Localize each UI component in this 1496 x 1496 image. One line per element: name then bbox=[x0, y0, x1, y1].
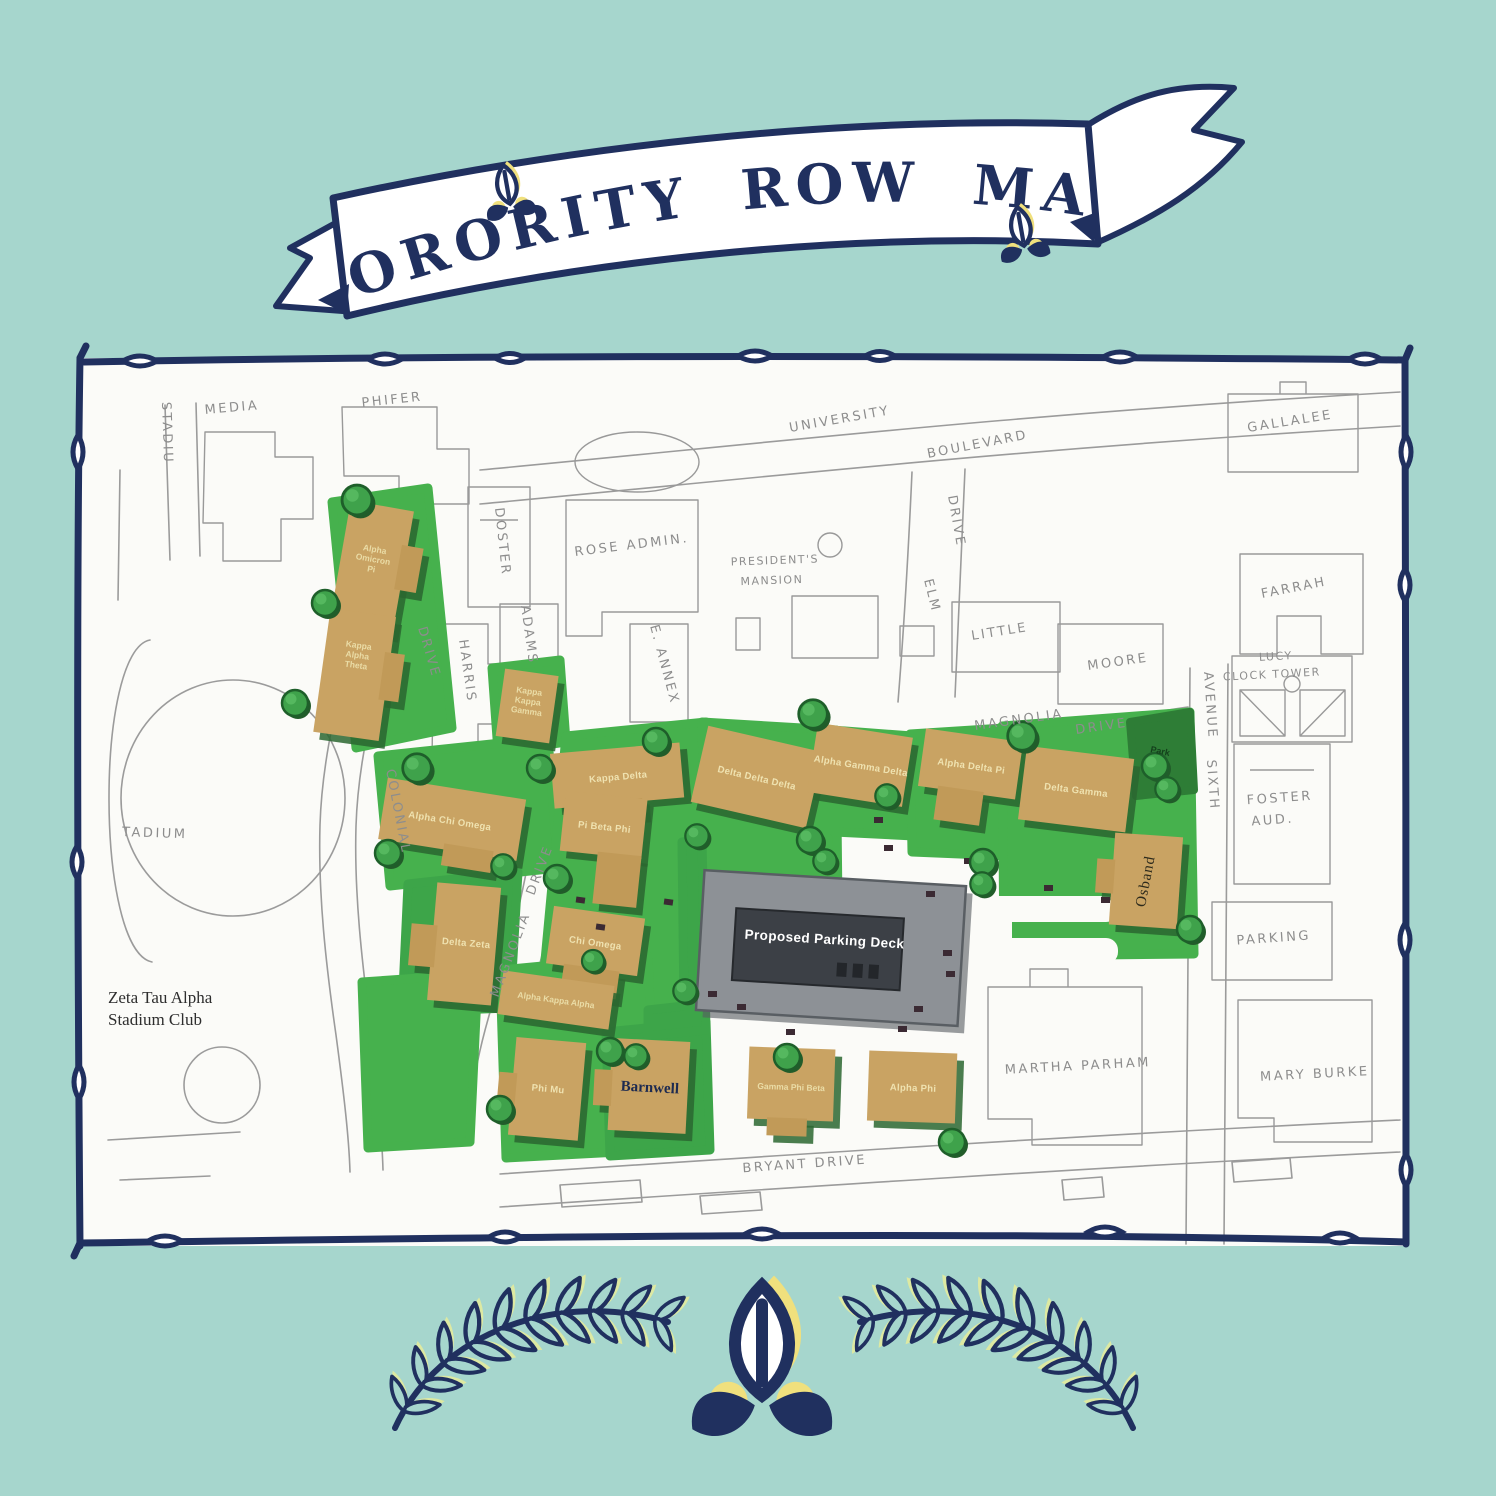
house-alpha-gamma-delta: Alpha Gamma Delta bbox=[806, 723, 920, 815]
svg-text:KappaKappaGamma: KappaKappaGamma bbox=[510, 684, 545, 718]
label-stadium-top: STADIU bbox=[158, 402, 175, 465]
house-delta-gamma: Delta Gamma bbox=[1017, 746, 1141, 840]
label-foster-2: AUD. bbox=[1251, 812, 1295, 830]
laurel-branch-right bbox=[837, 1270, 1148, 1428]
label-zta-1: Zeta Tau Alpha bbox=[108, 988, 213, 1007]
map-sheet: AlphaOmicronPi KappaAlphaTheta KappaKapp… bbox=[72, 346, 1411, 1256]
label-lucy-1: LUCY bbox=[1259, 649, 1293, 664]
label-zta-2: Stadium Club bbox=[108, 1010, 202, 1029]
svg-text:Alpha Phi: Alpha Phi bbox=[890, 1082, 937, 1095]
svg-text:Barnwell: Barnwell bbox=[620, 1078, 679, 1097]
footer-decoration bbox=[379, 1270, 1148, 1436]
label-presidents-mansion-2: MANSION bbox=[740, 573, 803, 588]
laurel-branch-left bbox=[379, 1270, 690, 1428]
house-kappa-kappa-gamma: KappaKappaGamma bbox=[495, 669, 566, 752]
house-alpha-phi: Alpha Phi bbox=[867, 1050, 965, 1130]
label-stadium-left: TADIUM bbox=[121, 825, 188, 842]
center-bud-icon bbox=[692, 1276, 832, 1436]
banner-right-tail bbox=[1080, 87, 1242, 244]
title-banner: SORORITY ROW MAP bbox=[0, 0, 1242, 316]
sorority-row-map-poster: SORORITY ROW MAP bbox=[0, 0, 1496, 1496]
